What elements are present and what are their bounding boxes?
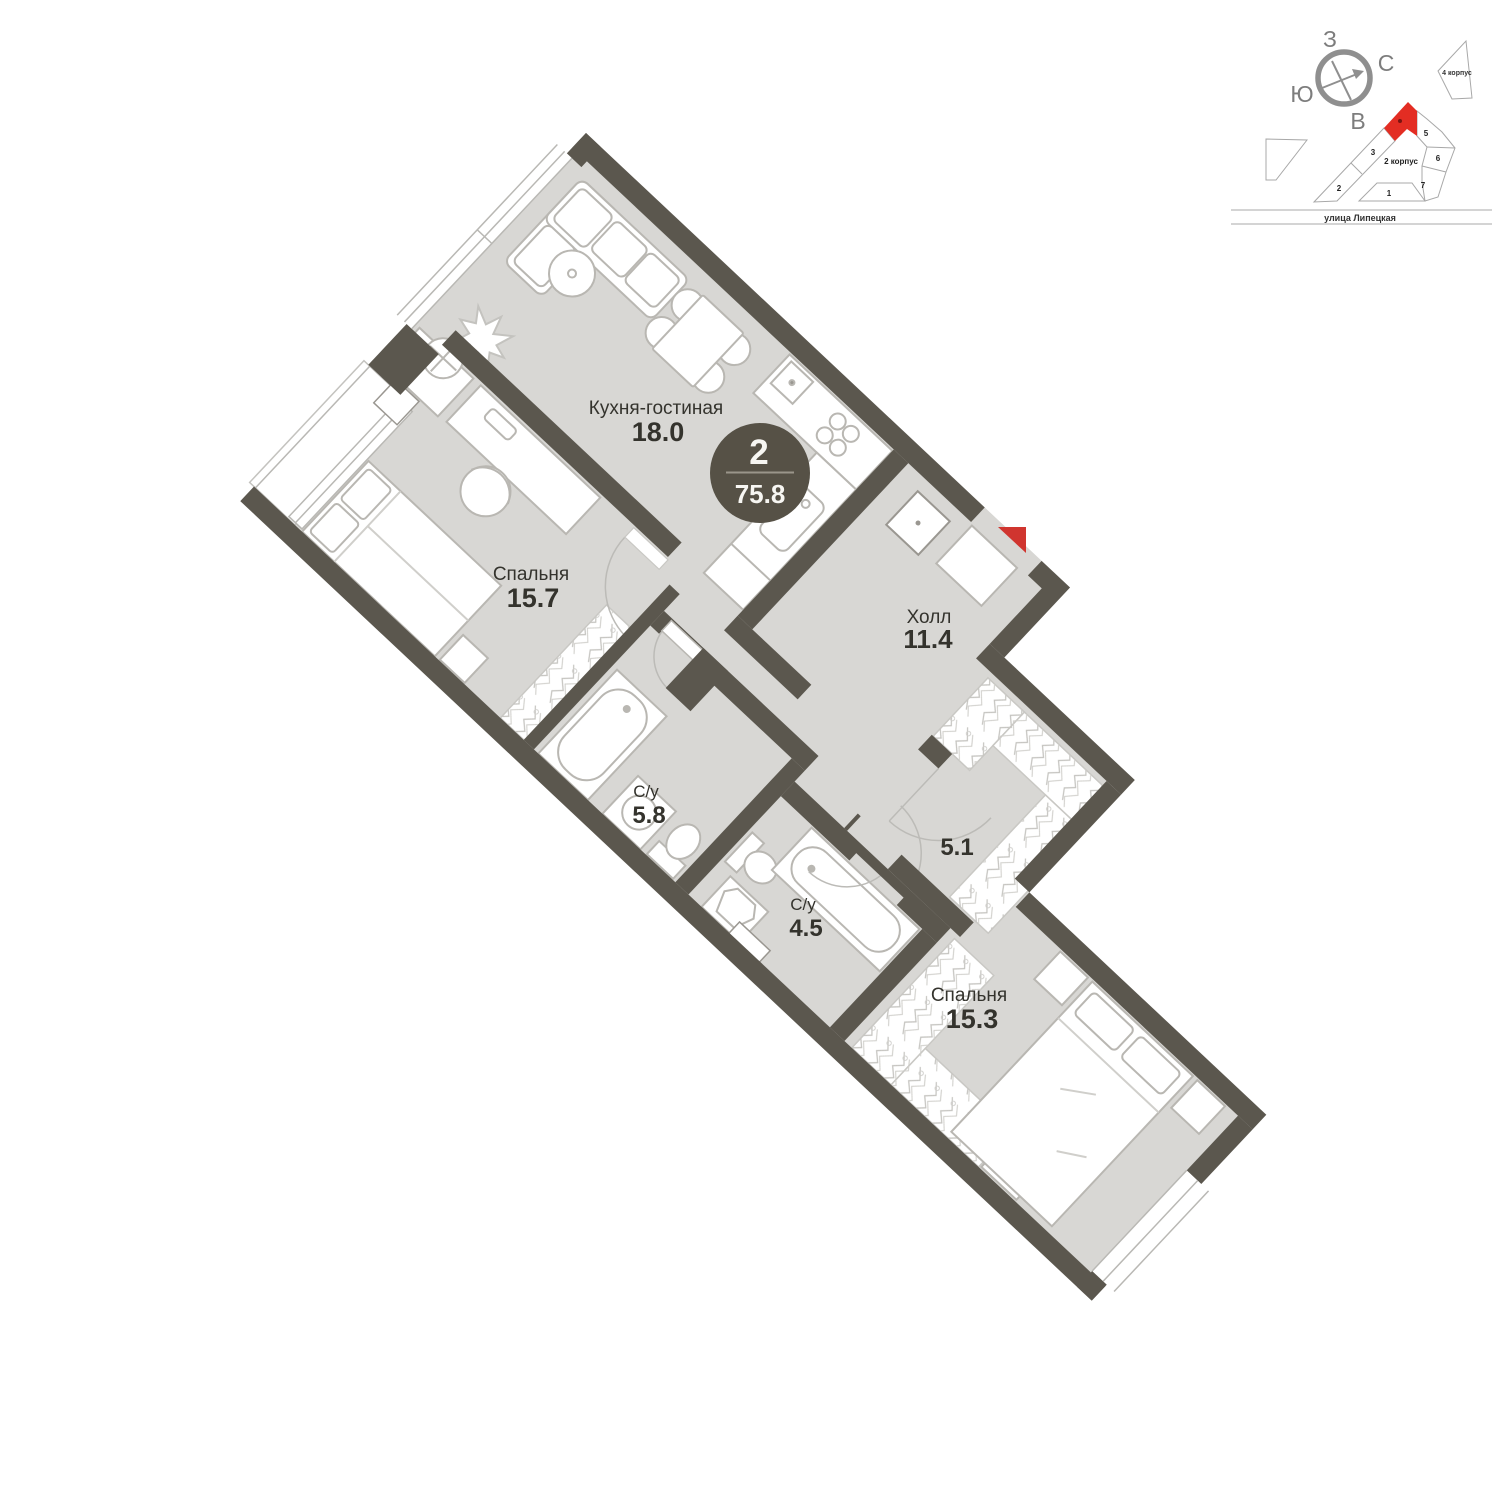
svg-text:5: 5 (1424, 129, 1429, 138)
svg-text:Спальня: Спальня (931, 985, 1007, 1006)
svg-text:11.4: 11.4 (903, 624, 953, 654)
svg-text:3: 3 (1371, 148, 1376, 157)
svg-text:4.5: 4.5 (789, 915, 822, 942)
svg-text:улица Липецкая: улица Липецкая (1324, 213, 1396, 223)
svg-text:15.7: 15.7 (507, 583, 560, 613)
svg-text:7: 7 (1421, 181, 1426, 190)
svg-text:С/у: С/у (790, 895, 816, 914)
svg-text:В: В (1350, 108, 1365, 134)
svg-text:15.3: 15.3 (946, 1004, 999, 1034)
svg-text:4 корпус: 4 корпус (1442, 70, 1472, 77)
svg-text:2: 2 (1337, 184, 1342, 193)
svg-text:18.0: 18.0 (632, 417, 685, 447)
svg-text:5.8: 5.8 (632, 802, 665, 829)
svg-text:2: 2 (749, 433, 768, 472)
svg-text:5.1: 5.1 (940, 834, 973, 861)
svg-text:2 корпус: 2 корпус (1384, 157, 1418, 166)
svg-text:6: 6 (1436, 154, 1441, 163)
svg-text:75.8: 75.8 (735, 479, 786, 509)
svg-text:Кухня-гостиная: Кухня-гостиная (589, 398, 723, 419)
svg-text:З: З (1323, 26, 1337, 52)
svg-text:Ю: Ю (1290, 81, 1313, 107)
svg-text:С: С (1378, 50, 1395, 76)
svg-text:Спальня: Спальня (493, 564, 569, 585)
svg-text:С/у: С/у (633, 782, 659, 801)
svg-text:1: 1 (1387, 189, 1392, 198)
